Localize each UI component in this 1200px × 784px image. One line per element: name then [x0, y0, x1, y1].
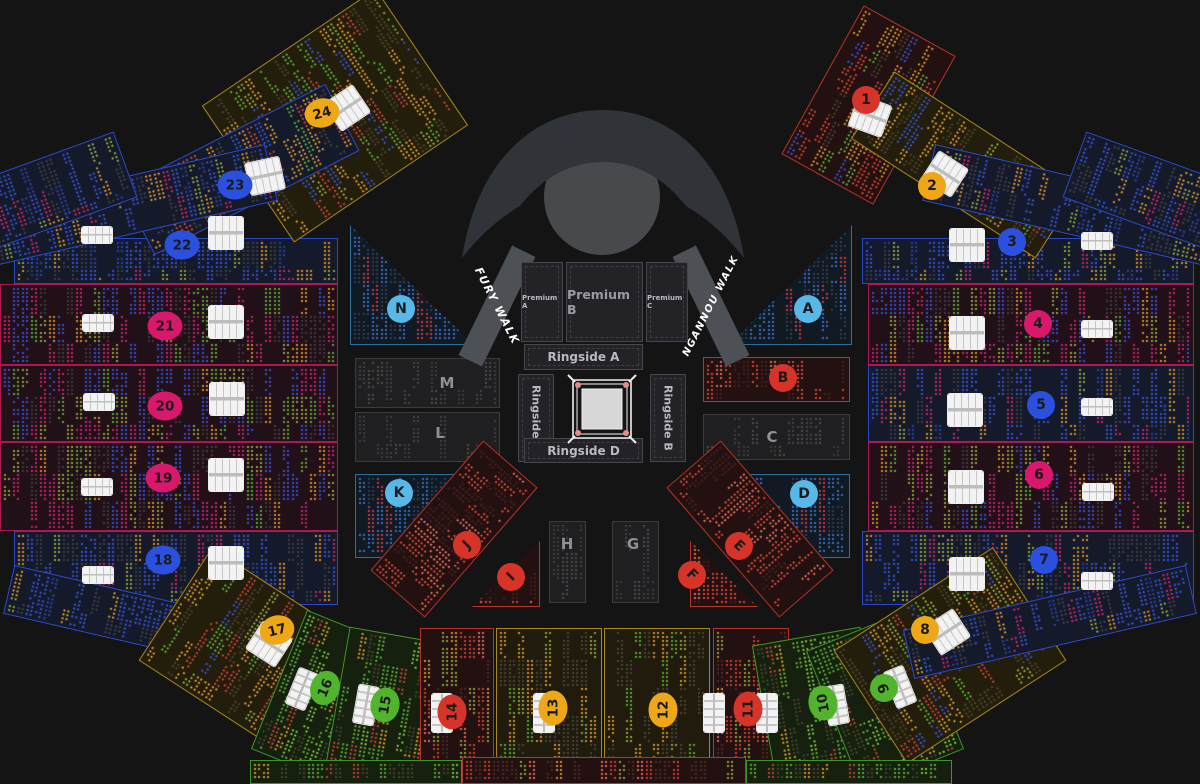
stairs-icon[interactable]	[84, 394, 114, 410]
section-B-badge[interactable]: B	[769, 364, 797, 392]
stairs-icon[interactable]	[1082, 399, 1112, 415]
stairs-icon[interactable]	[1083, 484, 1113, 500]
section-2-badge[interactable]: 2	[918, 172, 946, 200]
lower-bowl-center[interactable]	[462, 757, 746, 784]
section-3-badge[interactable]: 3	[998, 228, 1026, 256]
section-13-badge[interactable]: 13	[539, 691, 568, 726]
section-C-label: C	[766, 428, 777, 446]
section-premium-c[interactable]: Premium C	[646, 262, 688, 342]
section-6-badge[interactable]: 6	[1025, 461, 1053, 489]
section-L-label: L	[435, 424, 445, 442]
stairs-icon[interactable]	[950, 317, 984, 349]
stairs-icon[interactable]	[949, 471, 983, 503]
section-N-badge[interactable]: N	[387, 295, 415, 323]
stairs-icon[interactable]	[1082, 233, 1112, 249]
stairs-icon[interactable]	[209, 547, 243, 579]
stairs-icon[interactable]	[950, 229, 984, 261]
section-D-badge[interactable]: D	[790, 480, 818, 508]
section-23-badge[interactable]: 23	[218, 171, 253, 200]
stairs-icon[interactable]	[82, 479, 112, 495]
section-11-badge[interactable]: 11	[734, 692, 763, 727]
section-ringside-b[interactable]: Ringside B	[650, 374, 686, 462]
premium-c-label: Premium C	[647, 294, 687, 310]
stairs-icon[interactable]	[210, 383, 244, 415]
section-M-label: M	[440, 374, 455, 392]
stairs-icon[interactable]	[209, 459, 243, 491]
section-G-label: G	[627, 535, 639, 553]
stairs-icon[interactable]	[704, 694, 724, 732]
stage	[448, 96, 758, 271]
premium-a-label: Premium A	[522, 294, 562, 310]
section-1-badge[interactable]: 1	[852, 86, 880, 114]
section-8-badge[interactable]: 8	[911, 616, 939, 644]
section-4-badge[interactable]: 4	[1024, 310, 1052, 338]
stairs-icon[interactable]	[950, 558, 984, 590]
stairs-icon[interactable]	[82, 227, 112, 243]
ringside-a-label: Ringside A	[548, 350, 620, 364]
section-K-badge[interactable]: K	[385, 479, 413, 507]
section-ringside-a[interactable]: Ringside A	[524, 344, 643, 370]
stairs-icon[interactable]	[209, 217, 243, 249]
section-12-badge[interactable]: 12	[649, 693, 678, 728]
boxing-ring	[565, 372, 639, 446]
section-7-badge[interactable]: 7	[1030, 546, 1058, 574]
section-G[interactable]	[612, 521, 659, 603]
stairs-icon[interactable]	[83, 567, 113, 583]
stairs-icon[interactable]	[83, 315, 113, 331]
stairs-icon[interactable]	[1082, 573, 1112, 589]
section-22-badge[interactable]: 22	[165, 231, 200, 260]
stairs-icon[interactable]	[209, 306, 243, 338]
section-A-badge[interactable]: A	[794, 295, 822, 323]
premium-b-label: Premium B	[567, 287, 642, 317]
section-premium-a[interactable]: Premium A	[521, 262, 563, 342]
stairs-icon[interactable]	[1082, 321, 1112, 337]
section-M[interactable]	[355, 358, 500, 408]
section-21-badge[interactable]: 21	[148, 312, 183, 341]
section-14-badge[interactable]: 14	[438, 695, 467, 730]
section-H[interactable]	[549, 521, 586, 603]
section-18-badge[interactable]: 18	[146, 546, 181, 575]
lower-bowl-right[interactable]	[746, 760, 952, 784]
section-19-badge[interactable]: 19	[146, 464, 181, 493]
section-5-badge[interactable]: 5	[1027, 391, 1055, 419]
seat-map: FURY WALK NGANNOU WALK Pre	[0, 0, 1200, 784]
section-premium-b[interactable]: Premium B	[566, 262, 643, 342]
stairs-icon[interactable]	[948, 394, 982, 426]
section-H-label: H	[561, 535, 574, 553]
ringside-b-label: Ringside B	[662, 385, 675, 451]
section-20-badge[interactable]: 20	[148, 392, 183, 421]
lower-bowl-left[interactable]	[250, 760, 462, 784]
